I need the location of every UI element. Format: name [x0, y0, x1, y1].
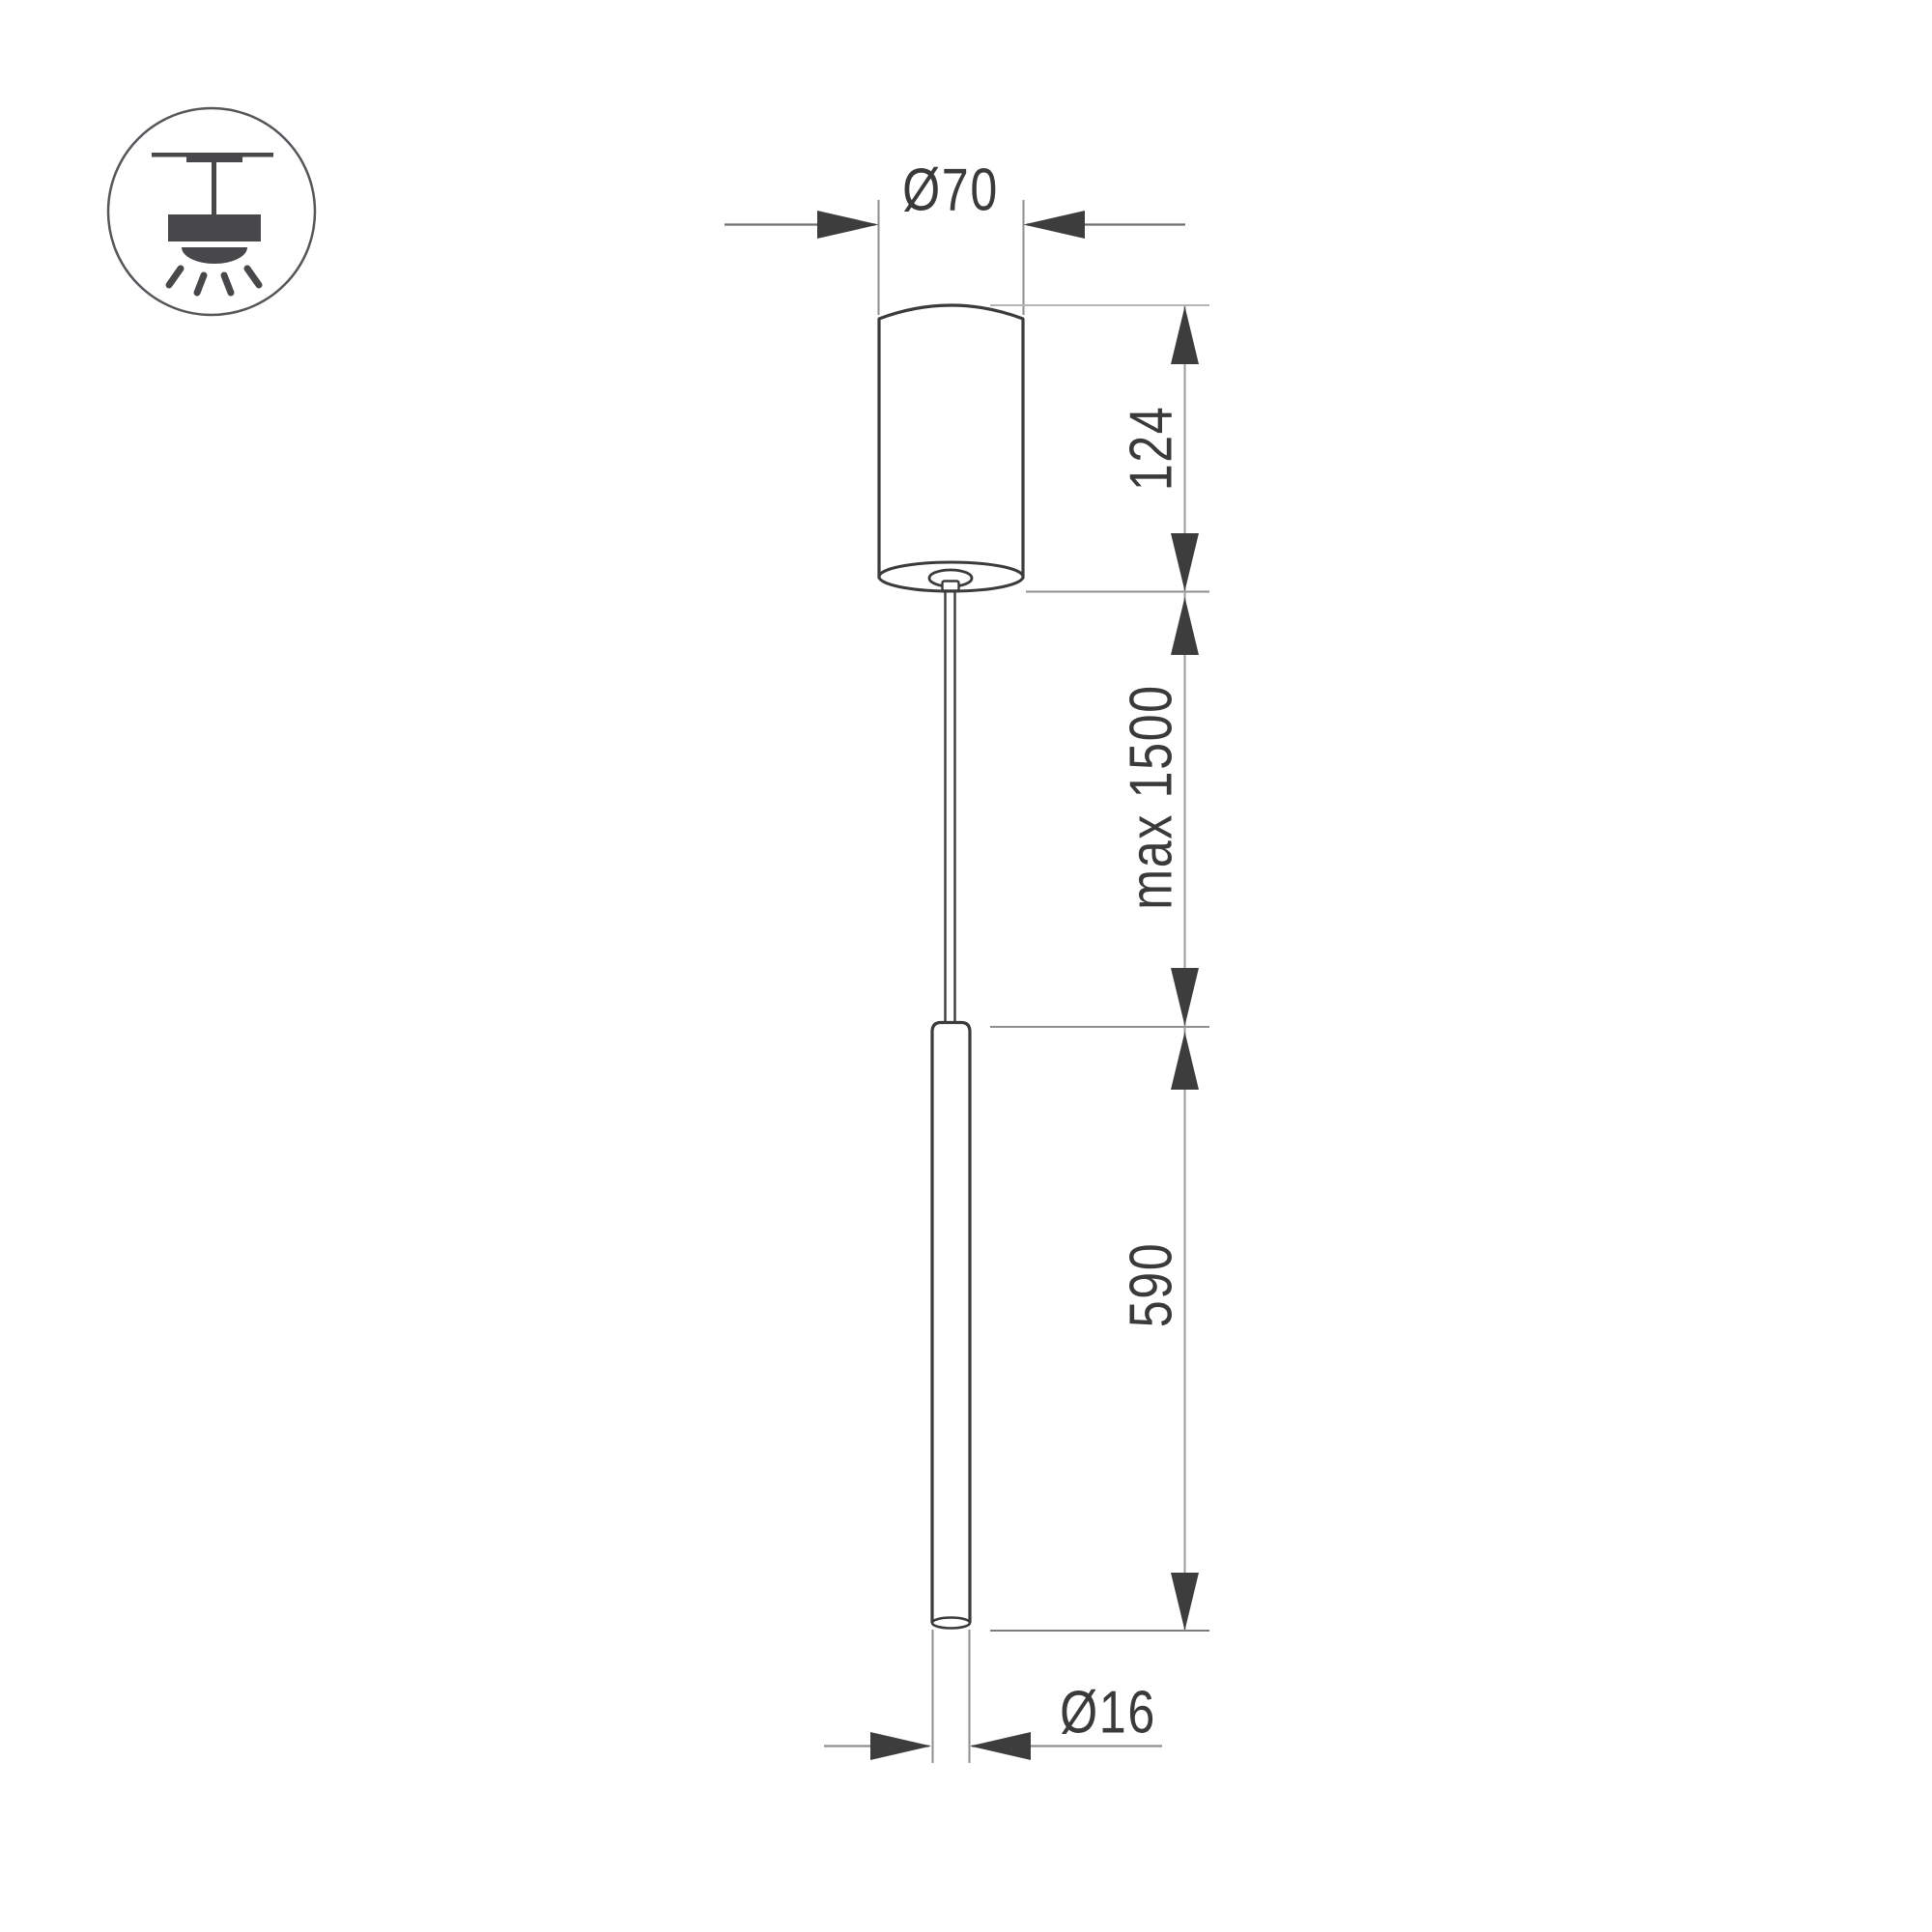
- icon-lamp-body: [168, 214, 261, 241]
- tube-body: [932, 1023, 970, 1624]
- arrowhead-down-icon: [1171, 533, 1199, 591]
- arrowhead-right-icon: [870, 1732, 931, 1760]
- dimension-canopy-diameter: Ø70: [724, 156, 1185, 239]
- arrowhead-up-icon: [1171, 597, 1199, 655]
- tube-diameter-label: Ø16: [1060, 1678, 1156, 1745]
- dimension-chain-right: 124 max 1500 590: [1117, 306, 1199, 1631]
- arrowhead-up-icon: [1171, 306, 1199, 364]
- luminaire-drawing: [879, 305, 1023, 1629]
- tube-bottom-rim: [932, 1618, 970, 1629]
- dimension-drawing-page: Ø70 124 max 1500 590 Ø16: [0, 0, 1932, 1932]
- icon-light-rays: [169, 269, 259, 293]
- suspension-length-label: max 1500: [1117, 684, 1183, 909]
- canopy-body: [879, 305, 1023, 578]
- canopy-diameter-label: Ø70: [902, 156, 999, 222]
- arrowhead-down-icon: [1171, 968, 1199, 1026]
- arrowhead-up-icon: [1171, 1032, 1199, 1090]
- dimension-tube-diameter: Ø16: [824, 1678, 1162, 1760]
- arrowhead-down-icon: [1171, 1573, 1199, 1631]
- icon-stem: [212, 160, 216, 216]
- icon-lamp-dome: [182, 247, 247, 264]
- arrowhead-left-icon: [1024, 211, 1086, 239]
- canopy-height-label: 124: [1117, 406, 1183, 492]
- arrowhead-right-icon: [817, 211, 879, 239]
- ceiling-pendant-icon: [108, 108, 315, 315]
- cable-gland-nipple: [943, 582, 959, 591]
- tube-length-label: 590: [1117, 1242, 1183, 1328]
- arrowhead-left-icon: [970, 1732, 1031, 1760]
- technical-drawing-canvas: Ø70 124 max 1500 590 Ø16: [0, 0, 1932, 1932]
